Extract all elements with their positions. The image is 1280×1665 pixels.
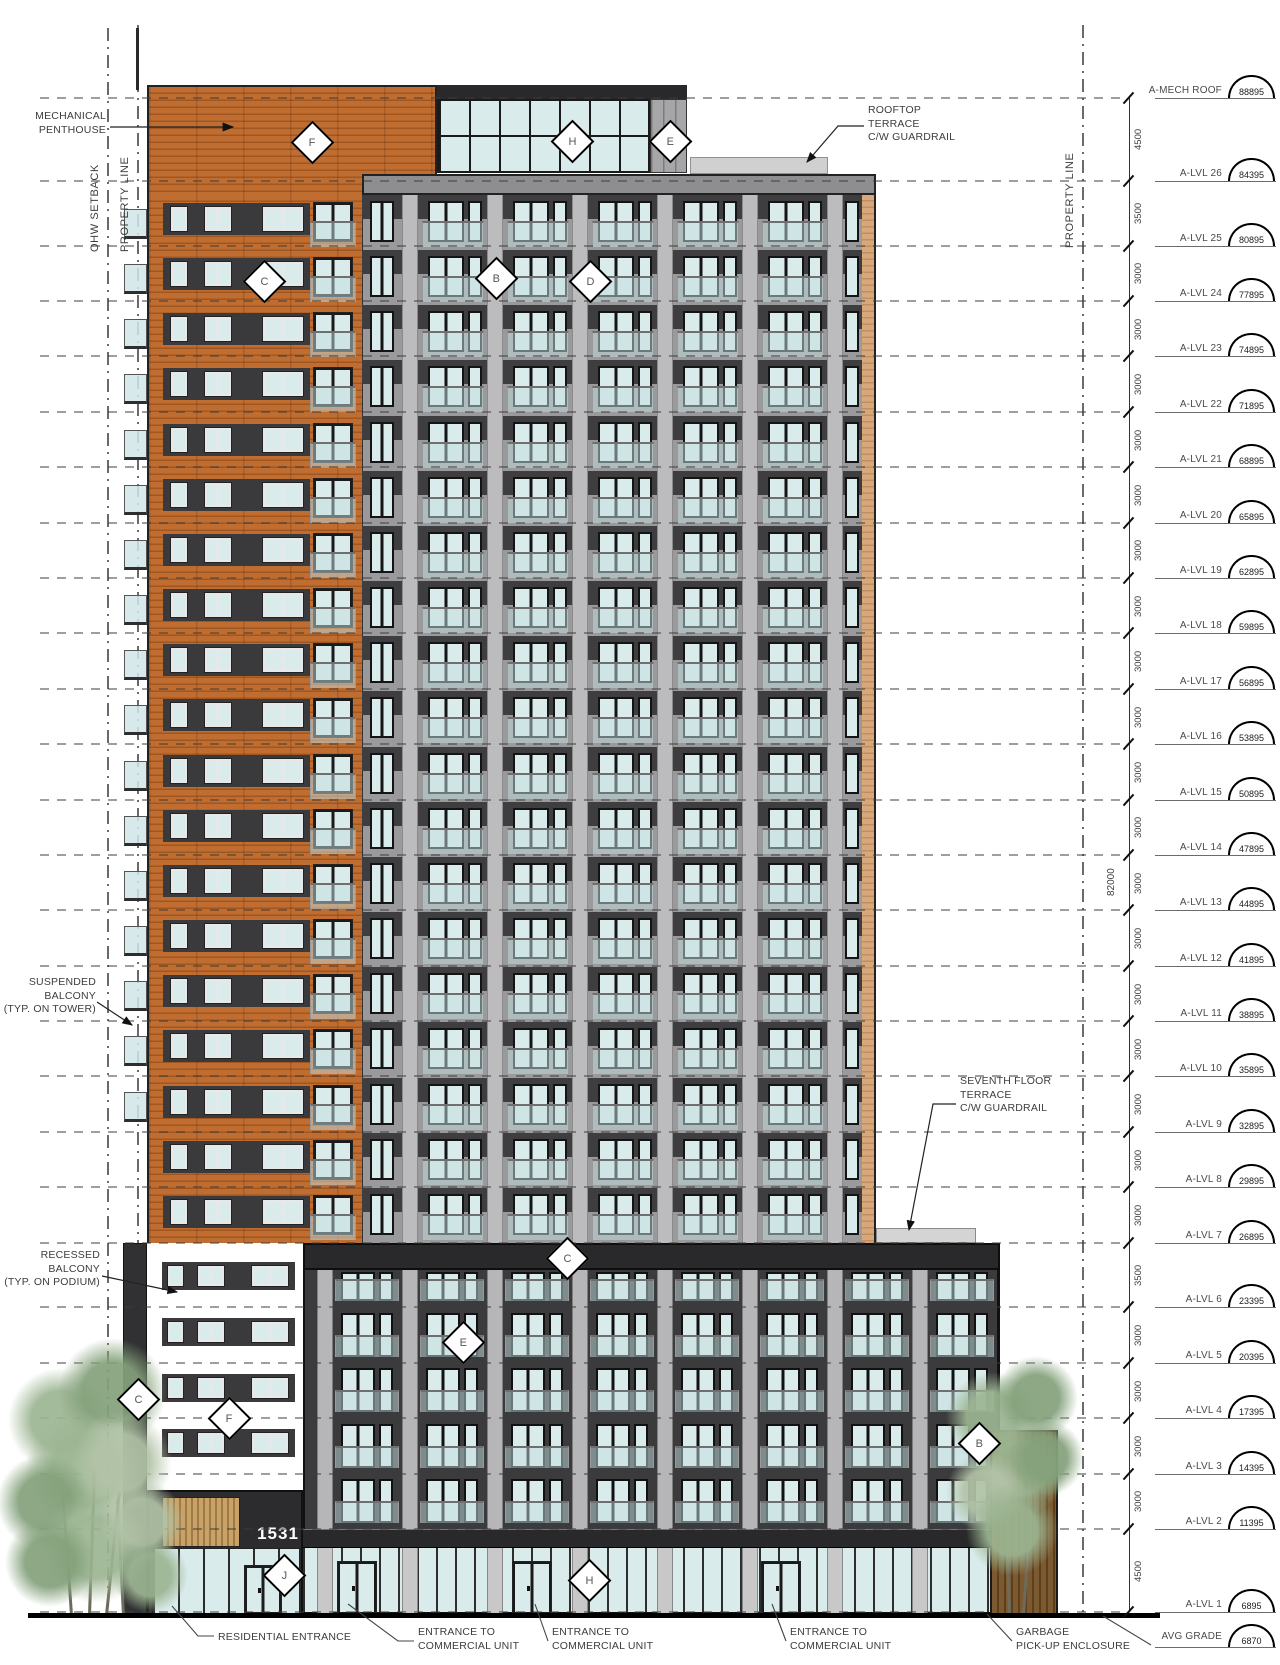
commercial-entrance-label-2: ENTRANCE TO COMMERCIAL UNIT <box>552 1626 672 1653</box>
suspended-balcony-label: SUSPENDED BALCONY (TYP. ON TOWER) <box>0 976 96 1017</box>
recessed-balcony-label: RECESSED BALCONY (TYP. ON PODIUM) <box>0 1249 100 1290</box>
garbage-enclosure-label: GARBAGE PICK-UP ENCLOSURE <box>1016 1626 1146 1653</box>
property-line-right-label: PROPERTY LINE <box>1064 8 1076 248</box>
leader-lines <box>0 0 1280 1665</box>
commercial-entrance-label-1: ENTRANCE TO COMMERCIAL UNIT <box>418 1626 538 1653</box>
mechanical-penthouse-label: MECHANICAL PENTHOUSE <box>18 110 106 137</box>
elevation-drawing: OHW SETBACK PROPERTY LINE PROPERTY LINE … <box>0 0 1280 1665</box>
commercial-entrance-label-3: ENTRANCE TO COMMERCIAL UNIT <box>790 1626 910 1653</box>
residential-entrance-label: RESIDENTIAL ENTRANCE <box>218 1631 378 1645</box>
property-line-left-label: PROPERTY LINE <box>119 12 131 252</box>
seventh-floor-terrace-label: SEVENTH FLOOR TERRACE C/W GUARDRAIL <box>960 1075 1070 1116</box>
rooftop-terrace-label: ROOFTOP TERRACE C/W GUARDRAIL <box>868 104 978 145</box>
